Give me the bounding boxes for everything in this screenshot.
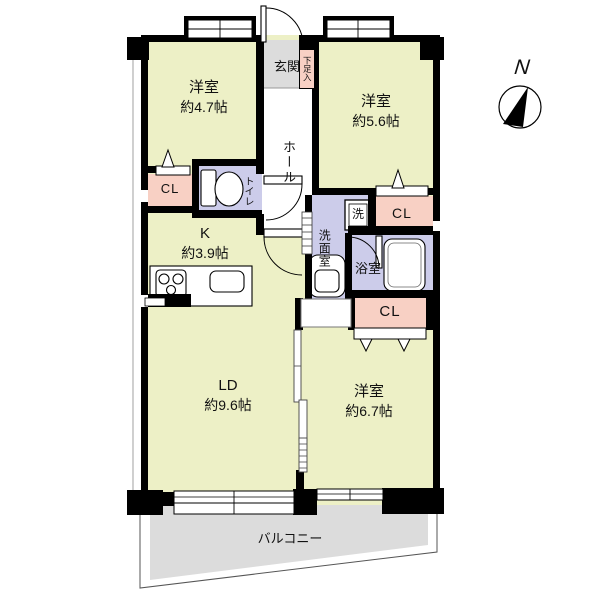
closet-south-label: CL: [354, 302, 426, 322]
wall-segment: [141, 42, 148, 505]
wall-segment: [426, 294, 433, 330]
closet-east-label: CL: [376, 204, 428, 222]
wall-segment: [305, 253, 312, 300]
room-label-bedroom-se: 洋室 約6.7帖: [305, 382, 433, 420]
room-label-hall: ホール: [279, 120, 296, 205]
wall-segment: [345, 290, 433, 298]
closet-south-door-bar: [354, 328, 426, 339]
room-size: 約5.6帖: [319, 112, 433, 130]
room-size: 約9.6帖: [153, 396, 303, 414]
compass: [499, 86, 541, 128]
room-name: 洋室: [319, 92, 433, 112]
floor-plan-graphics: [0, 0, 600, 600]
partition-panel: [299, 438, 307, 472]
wall-opening: [433, 221, 440, 231]
wall-segment: [305, 195, 312, 213]
floor-plan: 洋室 約4.7帖 洋室 約5.6帖 K 約3.9帖 LD 約9.6帖 洋室 約6…: [0, 0, 600, 600]
bedroom-se-doorway: [301, 299, 351, 327]
north-label: N: [504, 54, 541, 81]
wall-segment: [127, 490, 163, 515]
room-label-bedroom-ne: 洋室 約5.6帖: [319, 92, 433, 130]
room-label-toilet: トイレ: [241, 168, 254, 214]
room-label-washer: 洗: [345, 207, 371, 223]
kitchen-sink: [210, 271, 244, 292]
room-label-bathroom: 浴室: [350, 261, 386, 278]
wall-opening: [145, 298, 165, 306]
wall-segment: [433, 42, 440, 505]
wall-segment: [141, 166, 157, 173]
wall-segment: [428, 188, 440, 195]
stove-burner: [159, 274, 169, 284]
wall-segment: [192, 159, 199, 218]
room-size: 約3.9帖: [150, 244, 260, 262]
wall-segment: [192, 159, 262, 166]
wall-segment: [420, 37, 444, 60]
wall-segment: [312, 188, 376, 195]
stove-burner: [167, 286, 176, 295]
room-name: 洋室: [305, 382, 433, 402]
wall-segment: [348, 226, 433, 235]
toilet-bowl: [215, 172, 243, 206]
ldk-door-leaf: [264, 229, 303, 237]
stove-burner: [173, 274, 183, 284]
toilet-tank: [201, 170, 216, 206]
closet-west-label: CL: [148, 181, 192, 198]
shoe-cabinet: 下足入: [299, 49, 315, 89]
room-label-living-dining: LD 約9.6帖: [153, 376, 303, 414]
room-label-kitchen: K 約3.9帖: [150, 224, 260, 262]
room-size: 約4.7帖: [148, 98, 260, 116]
wall-segment: [141, 206, 192, 213]
entrance-door-leaf: [261, 6, 266, 42]
room-label-bedroom-nw: 洋室 約4.7帖: [148, 78, 260, 116]
room-label-washroom: 洗面室: [316, 202, 331, 294]
room-name: LD: [153, 376, 303, 396]
room-size: 約6.7帖: [305, 402, 433, 420]
room-name: 洋室: [148, 78, 260, 98]
bathtub-inner: [388, 243, 421, 287]
balcony-label: バルコニー: [190, 531, 390, 548]
wall-opening: [141, 190, 148, 202]
room-name: K: [150, 224, 260, 244]
wall-segment: [293, 489, 317, 515]
wall-segment: [382, 488, 444, 514]
